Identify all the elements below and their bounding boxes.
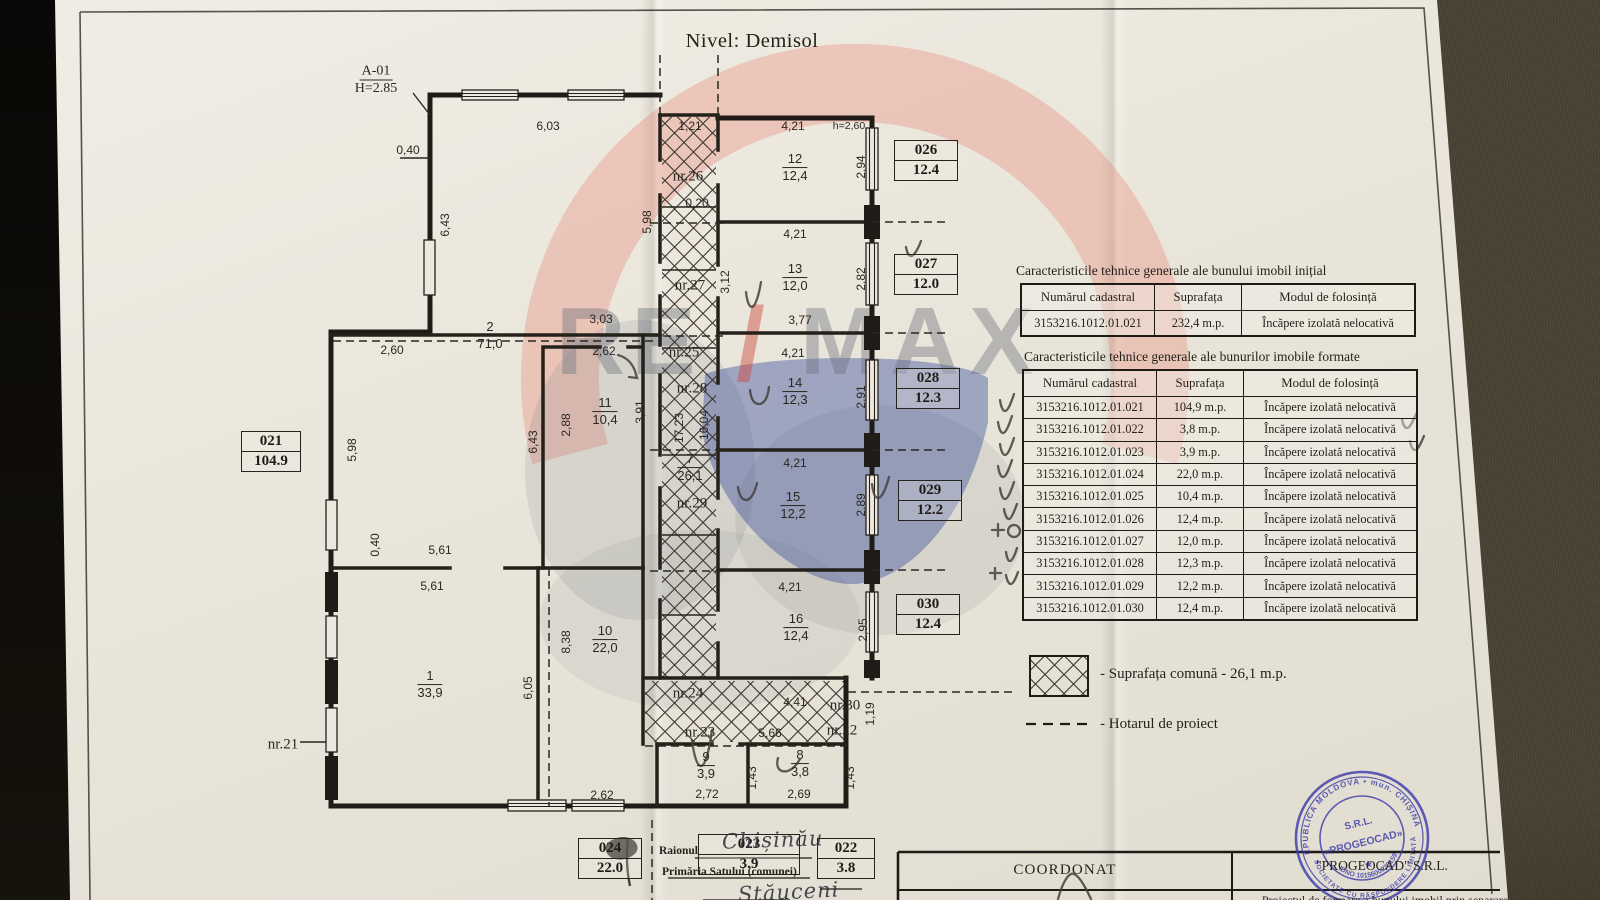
dimension-label: 4,21 [783, 456, 806, 470]
room-area-label: 93,9 [697, 750, 715, 782]
table-header-cell: Suprafața [1156, 371, 1243, 396]
parcel-id-box: 02812.3 [896, 368, 960, 409]
room-index: 13 [782, 262, 807, 278]
dimension-label: 2,89 [854, 493, 868, 516]
room-index: 8 [791, 748, 809, 764]
parcel-area: 104.9 [242, 452, 300, 471]
room-number-label: nr.24 [673, 686, 703, 703]
table-cell: 3,8 m.p. [1156, 419, 1243, 440]
dimension-label: 2,91 [854, 385, 868, 408]
dimension-label: 5,98 [345, 438, 359, 461]
room-area-value: 26,1 [677, 468, 702, 484]
table-row: 3153216.1012.01.02912,2 m.p.Încăpere izo… [1024, 574, 1416, 596]
dimension-label: 1,21 [678, 119, 701, 133]
dimension-label: 3,77 [788, 313, 811, 327]
table-cell: 3153216.1012.01.021 [1022, 311, 1154, 335]
section-height: H=2.85 [355, 81, 398, 97]
dimension-label: 6,03 [536, 119, 559, 133]
dimension-label: h=2,60 [833, 120, 865, 132]
initial-table-title: Caracteristicile tehnice generale ale bu… [1016, 263, 1326, 279]
room-area-label: 1612,4 [783, 612, 808, 644]
room-index: 10 [592, 624, 617, 640]
room-area-label: 1022,0 [592, 624, 617, 656]
stamp-srl-text: S.R.L. [1343, 815, 1373, 833]
parcel-code: 030 [897, 595, 959, 615]
table-cell: 3153216.1012.01.021 [1024, 397, 1156, 418]
dimension-label: 3,03 [589, 312, 612, 326]
table-cell: 3153216.1012.01.030 [1024, 598, 1156, 619]
table-row: 3153216.1012.01.0233,9 m.p.Încăpere izol… [1024, 441, 1416, 463]
room-number-label: nr.27 [675, 278, 705, 295]
parcel-code: 022 [818, 839, 874, 859]
table-row: 3153216.1012.01.02712,0 m.p.Încăpere izo… [1024, 530, 1416, 552]
room-area-value: 12,3 [782, 392, 807, 408]
room-number-label: nr.21 [268, 737, 298, 754]
room-area-value: 12,4 [782, 168, 807, 184]
parcel-id-box: 02612.4 [894, 140, 958, 181]
table-row: 3153216.1012.01.0223,8 m.p.Încăpere izol… [1024, 418, 1416, 440]
room-number-label: nr.30 [830, 698, 860, 715]
table-cell: Încăpere izolată nelocativă [1243, 442, 1416, 463]
room-area-value: 12,0 [782, 278, 807, 294]
room-index: 9 [697, 750, 715, 766]
coordonat-label: COORDONAT [1013, 862, 1116, 879]
room-number-label: nr.22 [827, 723, 857, 740]
table-header-cell: Modul de folosință [1243, 371, 1416, 396]
paper-sheet: RE / MAX [0, 0, 1600, 900]
room-number-label: nr.23 [685, 725, 715, 742]
table-cell: Încăpere izolată nelocativă [1243, 598, 1416, 619]
room-index: 16 [783, 612, 808, 628]
dimension-label: 6,05 [521, 676, 535, 699]
parcel-id-box: 02422.0 [578, 838, 642, 879]
parcel-id-box: 03012.4 [896, 594, 960, 635]
dimension-label: 2,94 [854, 155, 868, 178]
table-header-row: Numărul cadastralSuprafațaModul de folos… [1022, 285, 1414, 310]
table-cell: Încăpere izolată nelocativă [1243, 397, 1416, 418]
corridor-door-lines [300, 93, 716, 742]
firm-name: "PROGEOCAD" S.R.L. [1316, 858, 1448, 874]
table-cell: 3153216.1012.01.029 [1024, 575, 1156, 596]
table-cell: 3153216.1012.01.026 [1024, 508, 1156, 529]
room-area-label: 133,9 [417, 669, 442, 701]
dimension-label: 2,62 [590, 788, 613, 802]
dimension-label: 2,69 [787, 787, 810, 801]
room-index: 2 [477, 320, 502, 336]
table-cell: Încăpere izolată nelocativă [1243, 575, 1416, 596]
table-cell: 3153216.1012.01.023 [1024, 442, 1156, 463]
table-header-row: Numărul cadastralSuprafațaModul de folos… [1024, 371, 1416, 396]
initial-property-table: Numărul cadastralSuprafațaModul de folos… [1020, 283, 1416, 337]
room-area-value: 22,0 [592, 640, 617, 656]
dimension-label: 1,19 [863, 702, 877, 725]
dimension-label: 6,43 [526, 430, 540, 453]
dimension-label: 4,21 [778, 580, 801, 594]
parcel-code: 021 [242, 432, 300, 452]
dimension-label: 6,43 [438, 213, 452, 236]
table-cell: 3153216.1012.01.024 [1024, 464, 1156, 485]
dimension-label: 2,72 [695, 787, 718, 801]
room-index: 15 [780, 490, 805, 506]
room-area-value: 71,0 [477, 336, 502, 352]
photo-of-cadastral-plan: RE / MAX [0, 0, 1600, 900]
table-row: 3153216.1012.01.02422,0 m.p.Încăpere izo… [1024, 463, 1416, 485]
section-mark: A-01 [360, 64, 393, 81]
table-header-cell: Numărul cadastral [1022, 285, 1154, 310]
table-cell: 10,4 m.p. [1156, 486, 1243, 507]
room-index: 14 [782, 376, 807, 392]
room-index: 7 [677, 452, 702, 468]
table-cell: 3153216.1012.01.025 [1024, 486, 1156, 507]
table-cell: Încăpere izolată nelocativă [1243, 419, 1416, 440]
progeocad-stamp: REPUBLICA MOLDOVA • mun. CHIȘINĂU SOCIET… [1282, 758, 1442, 900]
legend-common-area-label: - Suprafața comună - 26,1 m.p. [1100, 666, 1287, 683]
raionul-label: Raionul [659, 845, 698, 857]
room-area-label: 1312,0 [782, 262, 807, 294]
dimension-label: 2,82 [854, 267, 868, 290]
table-cell: 12,3 m.p. [1156, 553, 1243, 574]
dimension-label: 8,38 [559, 630, 573, 653]
project-description: Proiectul de formare a bunului imobil pr… [1262, 893, 1508, 900]
parcel-code: 028 [897, 369, 959, 389]
table-cell: 22,0 m.p. [1156, 464, 1243, 485]
room-area-label: 271,0 [477, 320, 502, 352]
stamp-name-text: «PROGEOCAD» [1323, 827, 1404, 858]
dimension-label: 2,95 [856, 618, 870, 641]
room-number-label: nr.25 [669, 345, 699, 362]
table-row: 3153216.1012.01.03012,4 m.p.Încăpere izo… [1024, 597, 1416, 619]
parcel-area: 12.4 [897, 615, 959, 634]
dimension-label: 0,40 [396, 143, 419, 157]
parcel-id-box: 02712.0 [894, 254, 958, 295]
table-row: 3153216.1012.01.021104,9 m.p.Încăpere iz… [1024, 396, 1416, 418]
dimension-label: 0,40 [368, 533, 382, 556]
table-row: 3153216.1012.01.02812,3 m.p.Încăpere izo… [1024, 552, 1416, 574]
page-title: Nivel: Demisol [686, 30, 819, 53]
parcel-id-box: 0223.8 [817, 838, 875, 879]
formed-properties-table: Numărul cadastralSuprafațaModul de folos… [1022, 369, 1418, 621]
dimension-label: 2,60 [380, 343, 403, 357]
parcel-area: 12.2 [899, 501, 961, 520]
parcel-area: 3.8 [818, 859, 874, 878]
table-cell: 12,0 m.p. [1156, 531, 1243, 552]
table-header-cell: Suprafața [1154, 285, 1241, 310]
dimension-label: 2,88 [559, 413, 573, 436]
room-area-value: 12,2 [780, 506, 805, 522]
dimension-label: 5,66 [758, 726, 781, 740]
table-row: 3153216.1012.01.021232,4 m.p.Încăpere iz… [1022, 310, 1414, 335]
room-area-label: 1412,3 [782, 376, 807, 408]
table-cell: 12,2 m.p. [1156, 575, 1243, 596]
parcel-id-box: 021104.9 [241, 431, 301, 472]
room-index: 11 [592, 396, 617, 412]
room-area-value: 3,9 [697, 766, 715, 782]
table-cell: Încăpere izolată nelocativă [1243, 508, 1416, 529]
table-header-cell: Numărul cadastral [1024, 371, 1156, 396]
room-index: 1 [417, 669, 442, 685]
table-cell: 232,4 m.p. [1154, 311, 1241, 335]
table-cell: Încăpere izolată nelocativă [1243, 486, 1416, 507]
table-cell: Încăpere izolată nelocativă [1243, 553, 1416, 574]
room-index: 12 [782, 152, 807, 168]
table-header-cell: Modul de folosință [1241, 285, 1414, 310]
dimension-label: 5,98 [640, 210, 654, 233]
parcel-area: 12.0 [895, 275, 957, 294]
legend-hatch-sample [1030, 656, 1088, 696]
table-cell: 3153216.1012.01.028 [1024, 553, 1156, 574]
dimension-label: 4,21 [783, 227, 806, 241]
parcel-code: 026 [895, 141, 957, 161]
table-cell: Încăpere izolată nelocativă [1241, 311, 1414, 335]
room-area-label: 726,1 [677, 452, 702, 484]
dimension-label: 4,21 [781, 346, 804, 360]
table-cell: 12,4 m.p. [1156, 508, 1243, 529]
table-cell: Încăpere izolată nelocativă [1243, 531, 1416, 552]
room-area-value: 3,8 [791, 764, 809, 780]
dimension-label: 2,62 [592, 344, 615, 358]
table-cell: 3153216.1012.01.027 [1024, 531, 1156, 552]
dimension-label: 5,61 [420, 579, 443, 593]
parcel-area: 22.0 [579, 859, 641, 878]
table-row: 3153216.1012.01.02510,4 m.p.Încăpere izo… [1024, 485, 1416, 507]
room-area-value: 33,9 [417, 685, 442, 701]
table-cell: 3,9 m.p. [1156, 442, 1243, 463]
formed-table-title: Caracteristicile tehnice generale ale bu… [1024, 349, 1360, 365]
parcel-area: 12.3 [897, 389, 959, 408]
room-area-value: 10,4 [592, 412, 617, 428]
legend-boundary-label: - Hotarul de proiect [1100, 716, 1218, 733]
parcel-code: 027 [895, 255, 957, 275]
dimension-label: 3,91 [633, 400, 647, 423]
dimension-label: 5,61 [428, 543, 451, 557]
room-area-label: 1212,4 [782, 152, 807, 184]
table-cell: 12,4 m.p. [1156, 598, 1243, 619]
parcel-code: 029 [899, 481, 961, 501]
room-area-value: 12,4 [783, 628, 808, 644]
primaria-label: Primăria Satului (comunei) [662, 866, 797, 878]
room-area-label: 83,8 [791, 748, 809, 780]
room-number-label: nr.28 [677, 381, 707, 398]
room-number-label: nr.26 [673, 169, 703, 186]
dimension-label: 4,41 [783, 695, 806, 709]
room-area-label: 1110,4 [592, 396, 617, 428]
table-row: 3153216.1012.01.02612,4 m.p.Încăpere izo… [1024, 507, 1416, 529]
room-number-label: nr.29 [677, 496, 707, 513]
handwritten-city: Chișinău [722, 826, 824, 854]
dimension-label: 17,23 [672, 413, 686, 443]
parcel-area: 12.4 [895, 161, 957, 180]
dimension-label: 16,04 [697, 410, 711, 440]
table-cell: 104,9 m.p. [1156, 397, 1243, 418]
parcel-id-box: 02912.2 [898, 480, 962, 521]
dimension-label: 1,43 [745, 766, 759, 789]
dimension-label: 4,21 [781, 119, 804, 133]
dimension-label: 1,43 [843, 766, 857, 789]
room-area-label: 1512,2 [780, 490, 805, 522]
table-cell: 3153216.1012.01.022 [1024, 419, 1156, 440]
table-cell: Încăpere izolată nelocativă [1243, 464, 1416, 485]
dimension-label: 0,20 [685, 196, 708, 210]
dimension-label: 3,12 [718, 270, 732, 293]
parcel-code: 024 [579, 839, 641, 859]
